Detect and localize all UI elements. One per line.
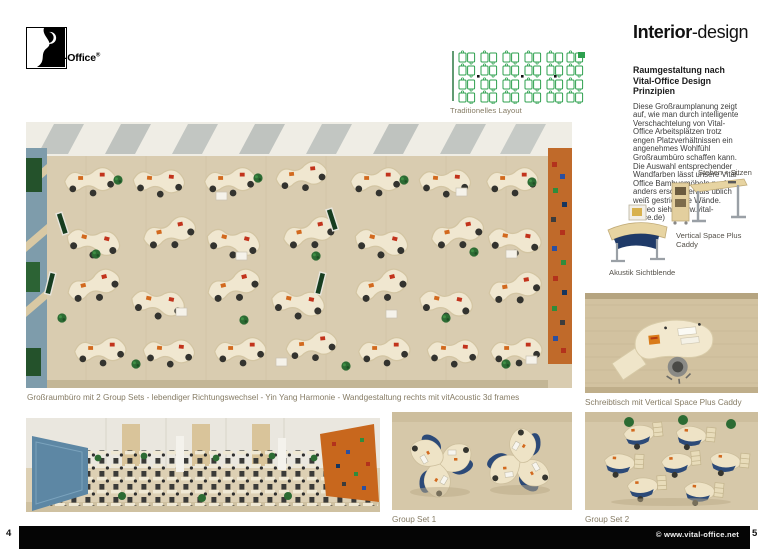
traditional-layout-diagram [450, 50, 587, 104]
logo-wordmark: Vital-Office® [43, 52, 100, 64]
copyright-text: © www.vital-office.net [656, 530, 739, 539]
desk-figure-caption: Schreibtisch mit Vertical Space Plus Cad… [585, 398, 742, 407]
group-set-1-rendering [392, 412, 572, 510]
title-bold: Interior [633, 22, 692, 42]
cad-floorplan-icon [450, 50, 587, 104]
desk-topview-rendering [585, 293, 758, 393]
office-perspective-rendering [26, 418, 380, 512]
page-number-right: 5 [752, 528, 757, 539]
group1-caption: Group Set 1 [392, 515, 436, 524]
footer-bar: © www.vital-office.net [19, 526, 750, 549]
article-subtitle: Raumgestaltung nach Vital-Office Design … [633, 65, 745, 97]
registered-mark: ® [96, 53, 100, 59]
screen-label: Akustik Sichtblende [609, 268, 675, 277]
caddy-label: Vertical Space Plus Caddy [676, 231, 744, 249]
group-set-2-rendering [585, 412, 758, 510]
title-light: -design [692, 22, 748, 42]
group2-caption: Group Set 2 [585, 515, 629, 524]
acoustic-screen-desk-image [605, 203, 671, 267]
brand-name: Vital-Office [43, 52, 96, 64]
page-title: Interior-design [633, 22, 745, 43]
group-set-2-image [585, 412, 758, 510]
single-desk-topview-image [585, 293, 758, 393]
standing-desk-image [668, 177, 748, 229]
office-floorplan-rendering [26, 122, 572, 388]
page-number-left: 4 [6, 528, 11, 539]
diagram-caption: Traditionelles Layout [450, 106, 522, 115]
standing-desk-label: Stehen + Sitzen [698, 168, 752, 177]
main-figure-caption: Großraumbüro mit 2 Group Sets - lebendig… [27, 393, 519, 402]
group-set-1-image [392, 412, 572, 510]
main-office-topview-image [26, 122, 572, 388]
brochure-page: Vital-Office® Traditionelles Layout [0, 0, 768, 549]
office-perspective-image [26, 418, 380, 512]
